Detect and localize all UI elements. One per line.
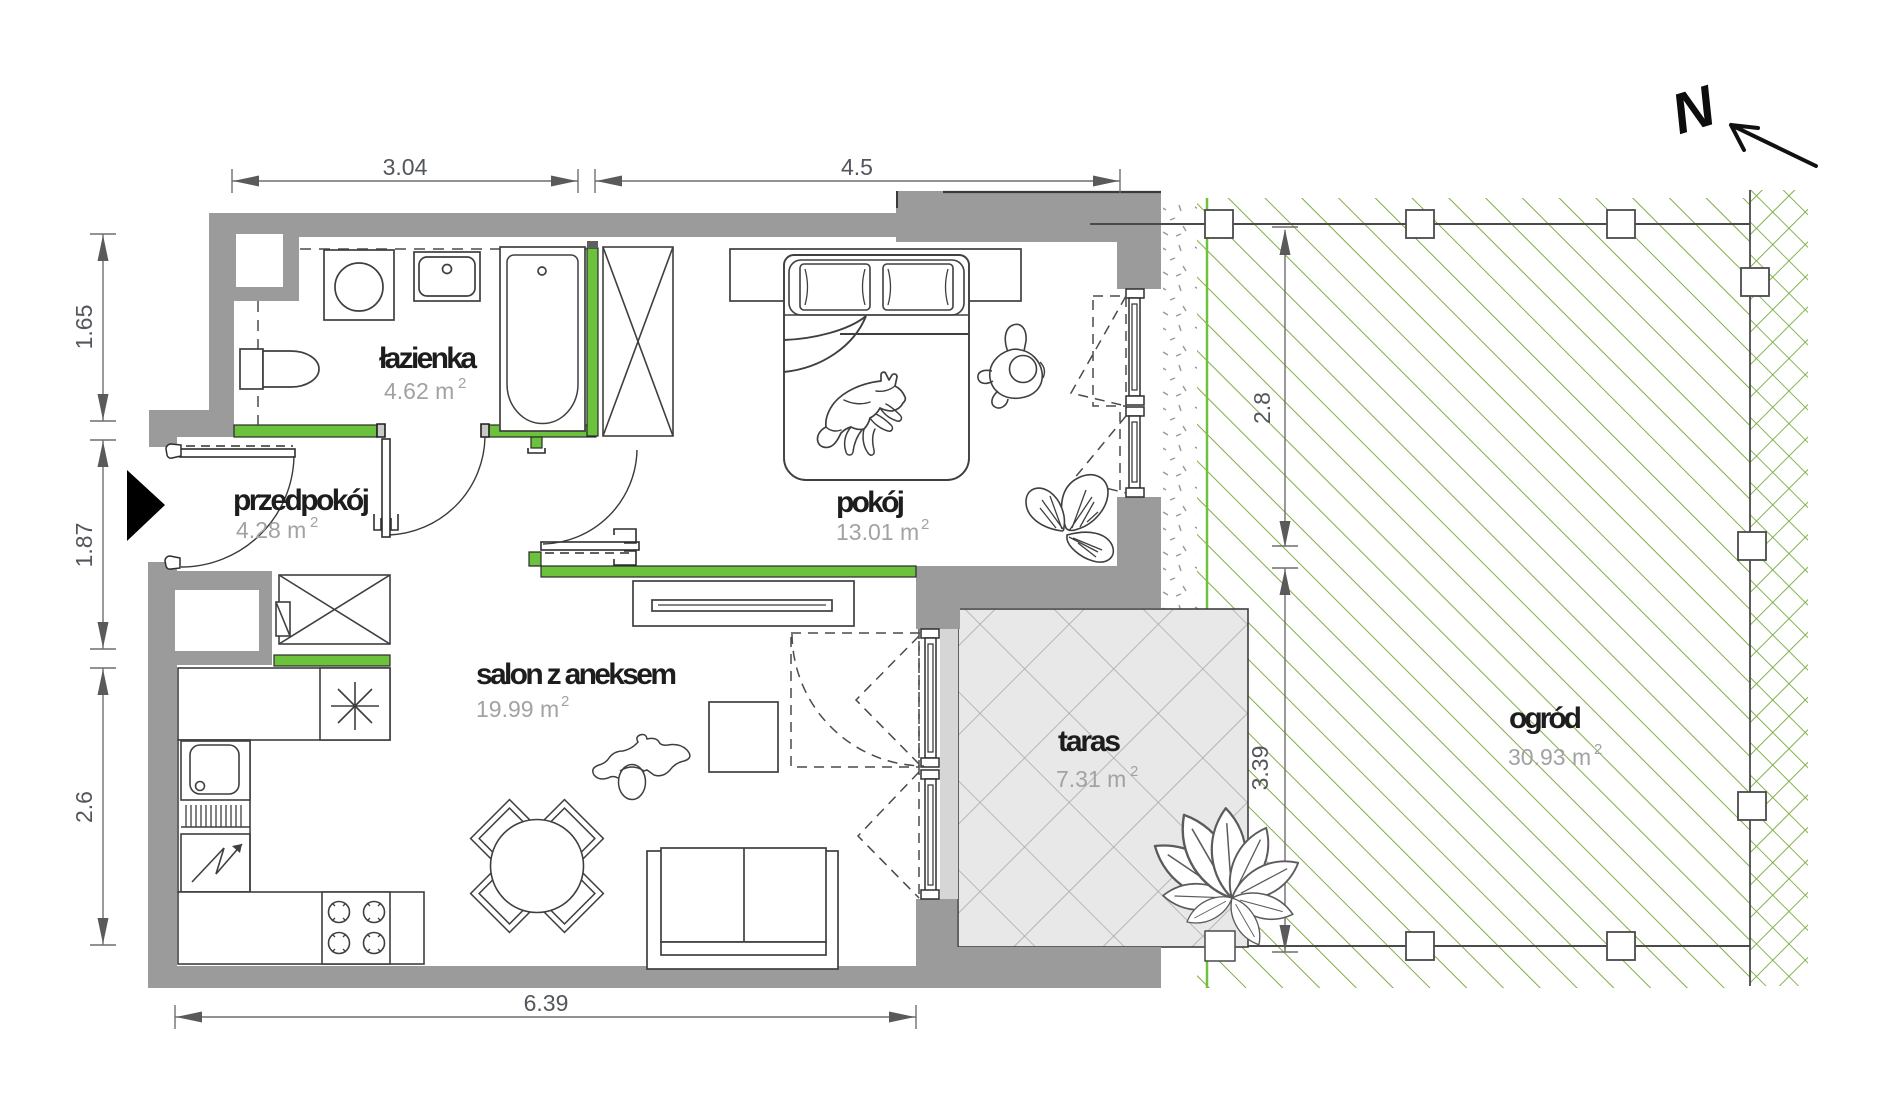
svg-text:łazienka: łazienka [379, 342, 477, 375]
svg-text:2: 2 [1594, 741, 1602, 758]
svg-text:2.8: 2.8 [1249, 392, 1275, 424]
svg-text:1.65: 1.65 [71, 305, 97, 350]
svg-text:przedpokój: przedpokój [233, 484, 370, 517]
svg-text:pokój: pokój [836, 486, 905, 519]
svg-text:2: 2 [921, 516, 929, 533]
svg-text:2: 2 [310, 514, 318, 531]
svg-text:6.39: 6.39 [524, 990, 569, 1016]
svg-text:19.99 m: 19.99 m [476, 696, 559, 722]
svg-text:3.39: 3.39 [1247, 746, 1273, 791]
svg-text:13.01 m: 13.01 m [836, 519, 919, 545]
svg-text:4.5: 4.5 [841, 154, 873, 180]
svg-text:2.6: 2.6 [71, 791, 97, 823]
svg-text:taras: taras [1058, 725, 1121, 758]
svg-text:7.31 m: 7.31 m [1056, 766, 1126, 792]
svg-text:1.87: 1.87 [71, 523, 97, 568]
svg-text:salon z aneksem: salon z aneksem [476, 658, 677, 691]
svg-text:4.62 m: 4.62 m [384, 378, 454, 404]
svg-text:30.93 m: 30.93 m [1508, 744, 1591, 770]
svg-text:4.28 m: 4.28 m [236, 517, 306, 543]
svg-text:2: 2 [458, 375, 466, 392]
svg-text:3.04: 3.04 [383, 154, 428, 180]
svg-text:ogród: ogród [1509, 702, 1582, 735]
svg-text:2: 2 [561, 693, 569, 710]
svg-text:2: 2 [1130, 763, 1138, 780]
